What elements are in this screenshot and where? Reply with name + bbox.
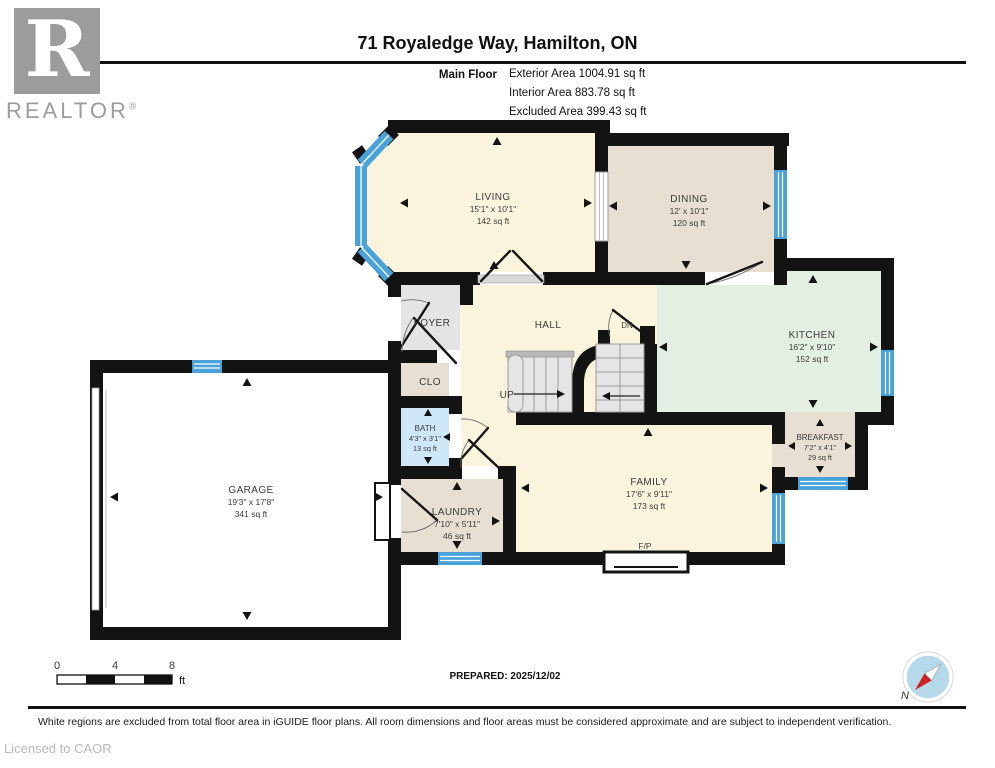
window-part (772, 493, 785, 544)
family-dims: 17'6" x 9'11" (626, 489, 672, 499)
living-dims: 15'1" x 10'1" (470, 204, 517, 214)
breakfast-area: 29 sq ft (808, 453, 832, 462)
door-part (478, 275, 544, 283)
door-part (375, 483, 390, 540)
living-name: LIVING (475, 192, 510, 203)
license-text: Licensed to CAOR (4, 741, 112, 756)
wall-part (90, 360, 400, 373)
laundry-name: LAUNDRY (432, 507, 482, 518)
kitchen-name: KITCHEN (789, 330, 836, 341)
fireplace-label: F/P (638, 541, 652, 551)
stairs-up (506, 351, 574, 412)
family-area: 173 sq ft (633, 501, 666, 511)
cased-opening-part (595, 172, 608, 241)
footer-rule (28, 706, 966, 709)
prepared-date: PREPARED: 2025/12/02 (0, 671, 995, 682)
garage-door-part (92, 388, 99, 610)
dining-dims: 12' x 10'1" (670, 206, 709, 216)
stairs-up-part (508, 355, 523, 412)
wall-part (90, 627, 401, 640)
wall-part (644, 344, 657, 412)
wall-part (774, 133, 787, 170)
wall-part (503, 466, 516, 565)
floor-fill-part (772, 444, 785, 467)
hall-name: HALL (535, 320, 562, 331)
compass-north-label: N (901, 690, 909, 702)
window-part (774, 170, 787, 239)
wall-part (388, 360, 401, 485)
wall-part (772, 467, 785, 493)
wall-part (460, 285, 473, 305)
kitchen-area: 152 sq ft (796, 354, 829, 364)
wall-part (772, 412, 785, 444)
cased-opening (595, 172, 608, 241)
window-part (881, 350, 894, 396)
wall-part (781, 258, 894, 271)
wall-part (597, 272, 705, 285)
breakfast-name: BREAKFAST (796, 433, 843, 442)
wall-part (686, 552, 785, 565)
window-part (438, 552, 482, 565)
family-name: FAMILY (630, 477, 667, 488)
disclaimer-text: White regions are excluded from total fl… (38, 716, 978, 728)
window-part (798, 477, 848, 490)
laundry-area: 46 sq ft (443, 531, 472, 541)
dining-area: 120 sq ft (673, 218, 706, 228)
garage-dims: 19'3" x 17'8" (228, 497, 275, 507)
wall-part (597, 133, 789, 146)
garage-name: GARAGE (228, 485, 273, 496)
wall-part (516, 552, 608, 565)
breakfast-dims: 7'2" x 4'1" (804, 443, 836, 452)
wall-part (388, 538, 401, 640)
wall-part (449, 396, 462, 414)
fireplace-part (604, 552, 688, 572)
wall-part (388, 120, 610, 133)
foyer-name: FOYER (414, 318, 450, 329)
wall-part (388, 272, 480, 285)
wall-part (516, 412, 785, 425)
bath-name: BATH (415, 424, 436, 433)
wall-part (868, 412, 894, 425)
wall-part (388, 285, 401, 297)
window-part (192, 360, 222, 373)
laundry-dims: 7'10" x 5'11" (434, 519, 480, 529)
wall-part (881, 258, 894, 350)
stairs-down-label: DN (621, 321, 633, 330)
fireplace (604, 552, 688, 572)
floor-fill-part (657, 285, 881, 412)
floor-fill-part (787, 271, 881, 287)
bath-area: 13 sq ft (413, 444, 437, 453)
living-area: 142 sq ft (477, 216, 510, 226)
stairs-up-label: UP (500, 390, 515, 401)
floor-plan: LIVING 15'1" x 10'1" 142 sq ft DINING 12… (0, 0, 995, 768)
closet-name: CLO (419, 377, 441, 388)
stairs-down (596, 344, 644, 412)
dining-name: DINING (670, 194, 707, 205)
wall-part (595, 133, 608, 172)
garage-area: 341 sq ft (235, 509, 268, 519)
wall-part (482, 552, 516, 565)
bath-dims: 4'3" x 3'1" (409, 434, 441, 443)
kitchen-dims: 16'2" x 9'10" (789, 342, 836, 352)
